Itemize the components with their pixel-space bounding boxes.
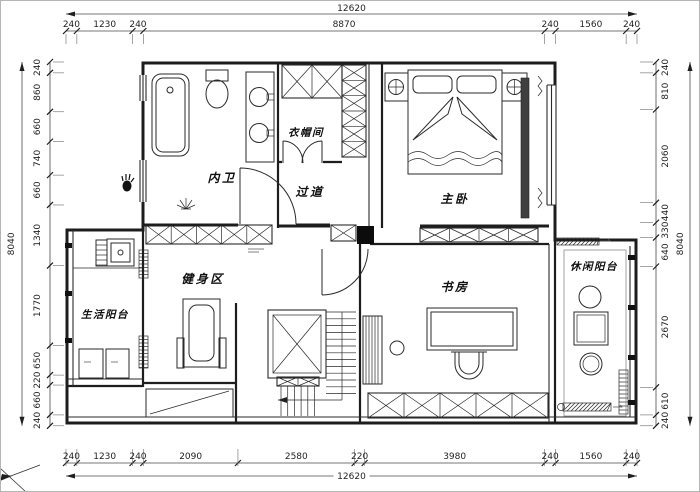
room-label-master: 主卧 [440, 192, 469, 206]
desk [427, 308, 517, 350]
bed [408, 70, 502, 174]
drying-rack [96, 240, 107, 266]
dim-label: 660 [33, 391, 43, 408]
table [574, 312, 608, 345]
dim-label: 2670 [661, 315, 671, 338]
dim-label: 2060 [661, 144, 671, 167]
dim-total: 8040 [7, 232, 17, 255]
study-furniture [363, 308, 517, 384]
staircase [268, 310, 342, 403]
sloped-zone [146, 389, 233, 417]
dim-label: 240 [63, 20, 80, 30]
tv-cabinet-bar [521, 78, 529, 218]
dim-label: 740 [33, 150, 43, 167]
bathroom-fixtures [122, 70, 296, 224]
room-label-gym: 健身区 [181, 272, 225, 286]
dim-label: 240 [129, 452, 146, 462]
dim-label: 2580 [285, 452, 308, 462]
room-label-bath: 内卫 [207, 171, 236, 185]
dim-label: 240 [661, 411, 671, 428]
dim-total: 12620 [337, 4, 366, 14]
dim-label: 440 [661, 204, 671, 221]
dim-label: 240 [63, 452, 80, 462]
dim-label: 3980 [443, 452, 466, 462]
dim-label: 240 [33, 411, 43, 428]
dim-total: 12620 [337, 472, 366, 482]
room-label-corridor: 过道 [295, 185, 324, 199]
dim-label: 1230 [93, 452, 116, 462]
dim-label: 1560 [579, 20, 602, 30]
dim-label: 1770 [33, 294, 43, 317]
dim-label: 240 [33, 59, 43, 76]
dim-label: 660 [33, 118, 43, 135]
room-label-study: 书房 [440, 280, 469, 294]
plant-symbol [177, 198, 195, 209]
round-chair [579, 286, 601, 308]
dim-label: 1560 [579, 452, 602, 462]
dim-label: 8870 [333, 20, 356, 30]
dim-label: 610 [661, 392, 671, 409]
cloakroom-doors [283, 141, 322, 163]
dim-label: 240 [542, 20, 559, 30]
sink-counter [246, 72, 274, 162]
toilet-bowl [206, 80, 228, 108]
room-label-cloakroom: 衣帽间 [288, 126, 324, 139]
dim-label: 660 [33, 181, 43, 198]
room-label-leisure-balcony: 休闲阳台 [570, 260, 618, 273]
floor-plan-canvas: 2401230240887024015602401262024012302402… [0, 0, 700, 492]
dim-label: 810 [661, 82, 671, 99]
chair [455, 352, 483, 379]
dim-label: 640 [661, 243, 671, 260]
dim-label: 2090 [179, 452, 202, 462]
structural-column [357, 226, 374, 244]
curtain-marks [538, 76, 542, 208]
dryer [106, 349, 129, 378]
dim-label: 240 [542, 452, 559, 462]
dim-label: 220 [351, 452, 368, 462]
corridor-elements [248, 226, 374, 295]
dim-label: 1230 [93, 20, 116, 30]
stool [390, 341, 404, 355]
dim-label: 240 [129, 20, 146, 30]
dim-total: 8040 [676, 232, 686, 255]
dim-label: 220 [33, 371, 43, 388]
bath-door-arc [240, 168, 296, 224]
dim-label: 240 [623, 20, 640, 30]
toilet-tank [206, 70, 228, 81]
washer [79, 349, 103, 378]
annotation-marks [248, 249, 264, 252]
stair-direction-arrow [278, 397, 287, 403]
walls [65, 63, 636, 423]
dim-label: 860 [33, 83, 43, 100]
dim-label: 1340 [33, 224, 43, 247]
dim-label: 240 [623, 452, 640, 462]
dim-label: 650 [33, 352, 43, 369]
floor-plan-page: 2401230240887024015602401262024012302402… [0, 0, 700, 492]
pipe-coil [619, 370, 628, 414]
room-label-life-balcony: 生活阳台 [81, 308, 129, 321]
dim-label: 240 [661, 59, 671, 76]
hand-symbol [122, 174, 134, 192]
dim-label: 330 [661, 221, 671, 238]
